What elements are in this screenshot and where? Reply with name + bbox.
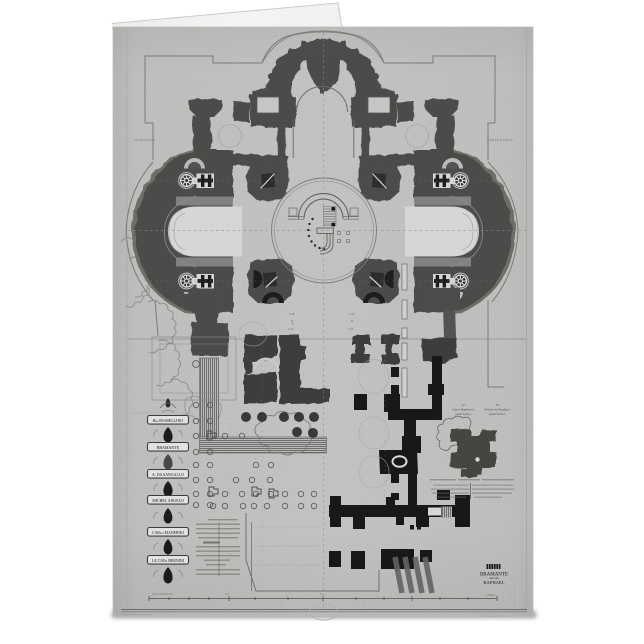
svg-text:SEPTENTRIO: SEPTENTRIO xyxy=(487,138,513,142)
svg-text:0.44: 0.44 xyxy=(349,312,355,316)
svg-text:CARLO MADERNO: CARLO MADERNO xyxy=(152,531,185,535)
svg-text:10: 10 xyxy=(225,592,229,596)
svg-text:B: B xyxy=(351,319,353,323)
svg-text:Pfeiler de Raphael: Pfeiler de Raphael xyxy=(484,408,509,412)
svg-text:LE CAVR BERNINI: LE CAVR BERNINI xyxy=(152,559,185,563)
svg-text:Scala di Metri 20: Scala di Metri 20 xyxy=(152,592,173,596)
svg-text:Unter Raphael's: Unter Raphael's xyxy=(452,408,474,412)
svg-text:MICHEL ANGELO: MICHEL ANGELO xyxy=(152,499,184,503)
svg-text:MERIDIES: MERIDIES xyxy=(135,138,156,142)
svg-text:0.19: 0.19 xyxy=(348,327,354,331)
svg-text:Bno ROSSELLINO: Bno ROSSELLINO xyxy=(153,419,183,423)
svg-text:A. DA SANGALLO: A. DA SANGALLO xyxy=(152,473,184,477)
svg-text:(nach Serlio): (nach Serlio) xyxy=(489,412,505,416)
svg-text:BRAMANTE: BRAMANTE xyxy=(157,445,180,450)
svg-text:RAPHAEL: RAPHAEL xyxy=(483,580,504,585)
svg-text:0.19: 0.19 xyxy=(288,327,294,331)
svg-text:13: 13 xyxy=(495,403,499,407)
svg-text:12: 12 xyxy=(461,403,465,407)
svg-text:(nach Serlio): (nach Serlio) xyxy=(455,412,471,416)
svg-text:B: B xyxy=(292,323,294,326)
svg-text:Imp. Lemercier et Cie: Imp. Lemercier et Cie xyxy=(482,615,507,618)
svg-text:0.48: 0.48 xyxy=(289,312,295,316)
svg-text:1 Metro: 1 Metro xyxy=(486,593,496,597)
